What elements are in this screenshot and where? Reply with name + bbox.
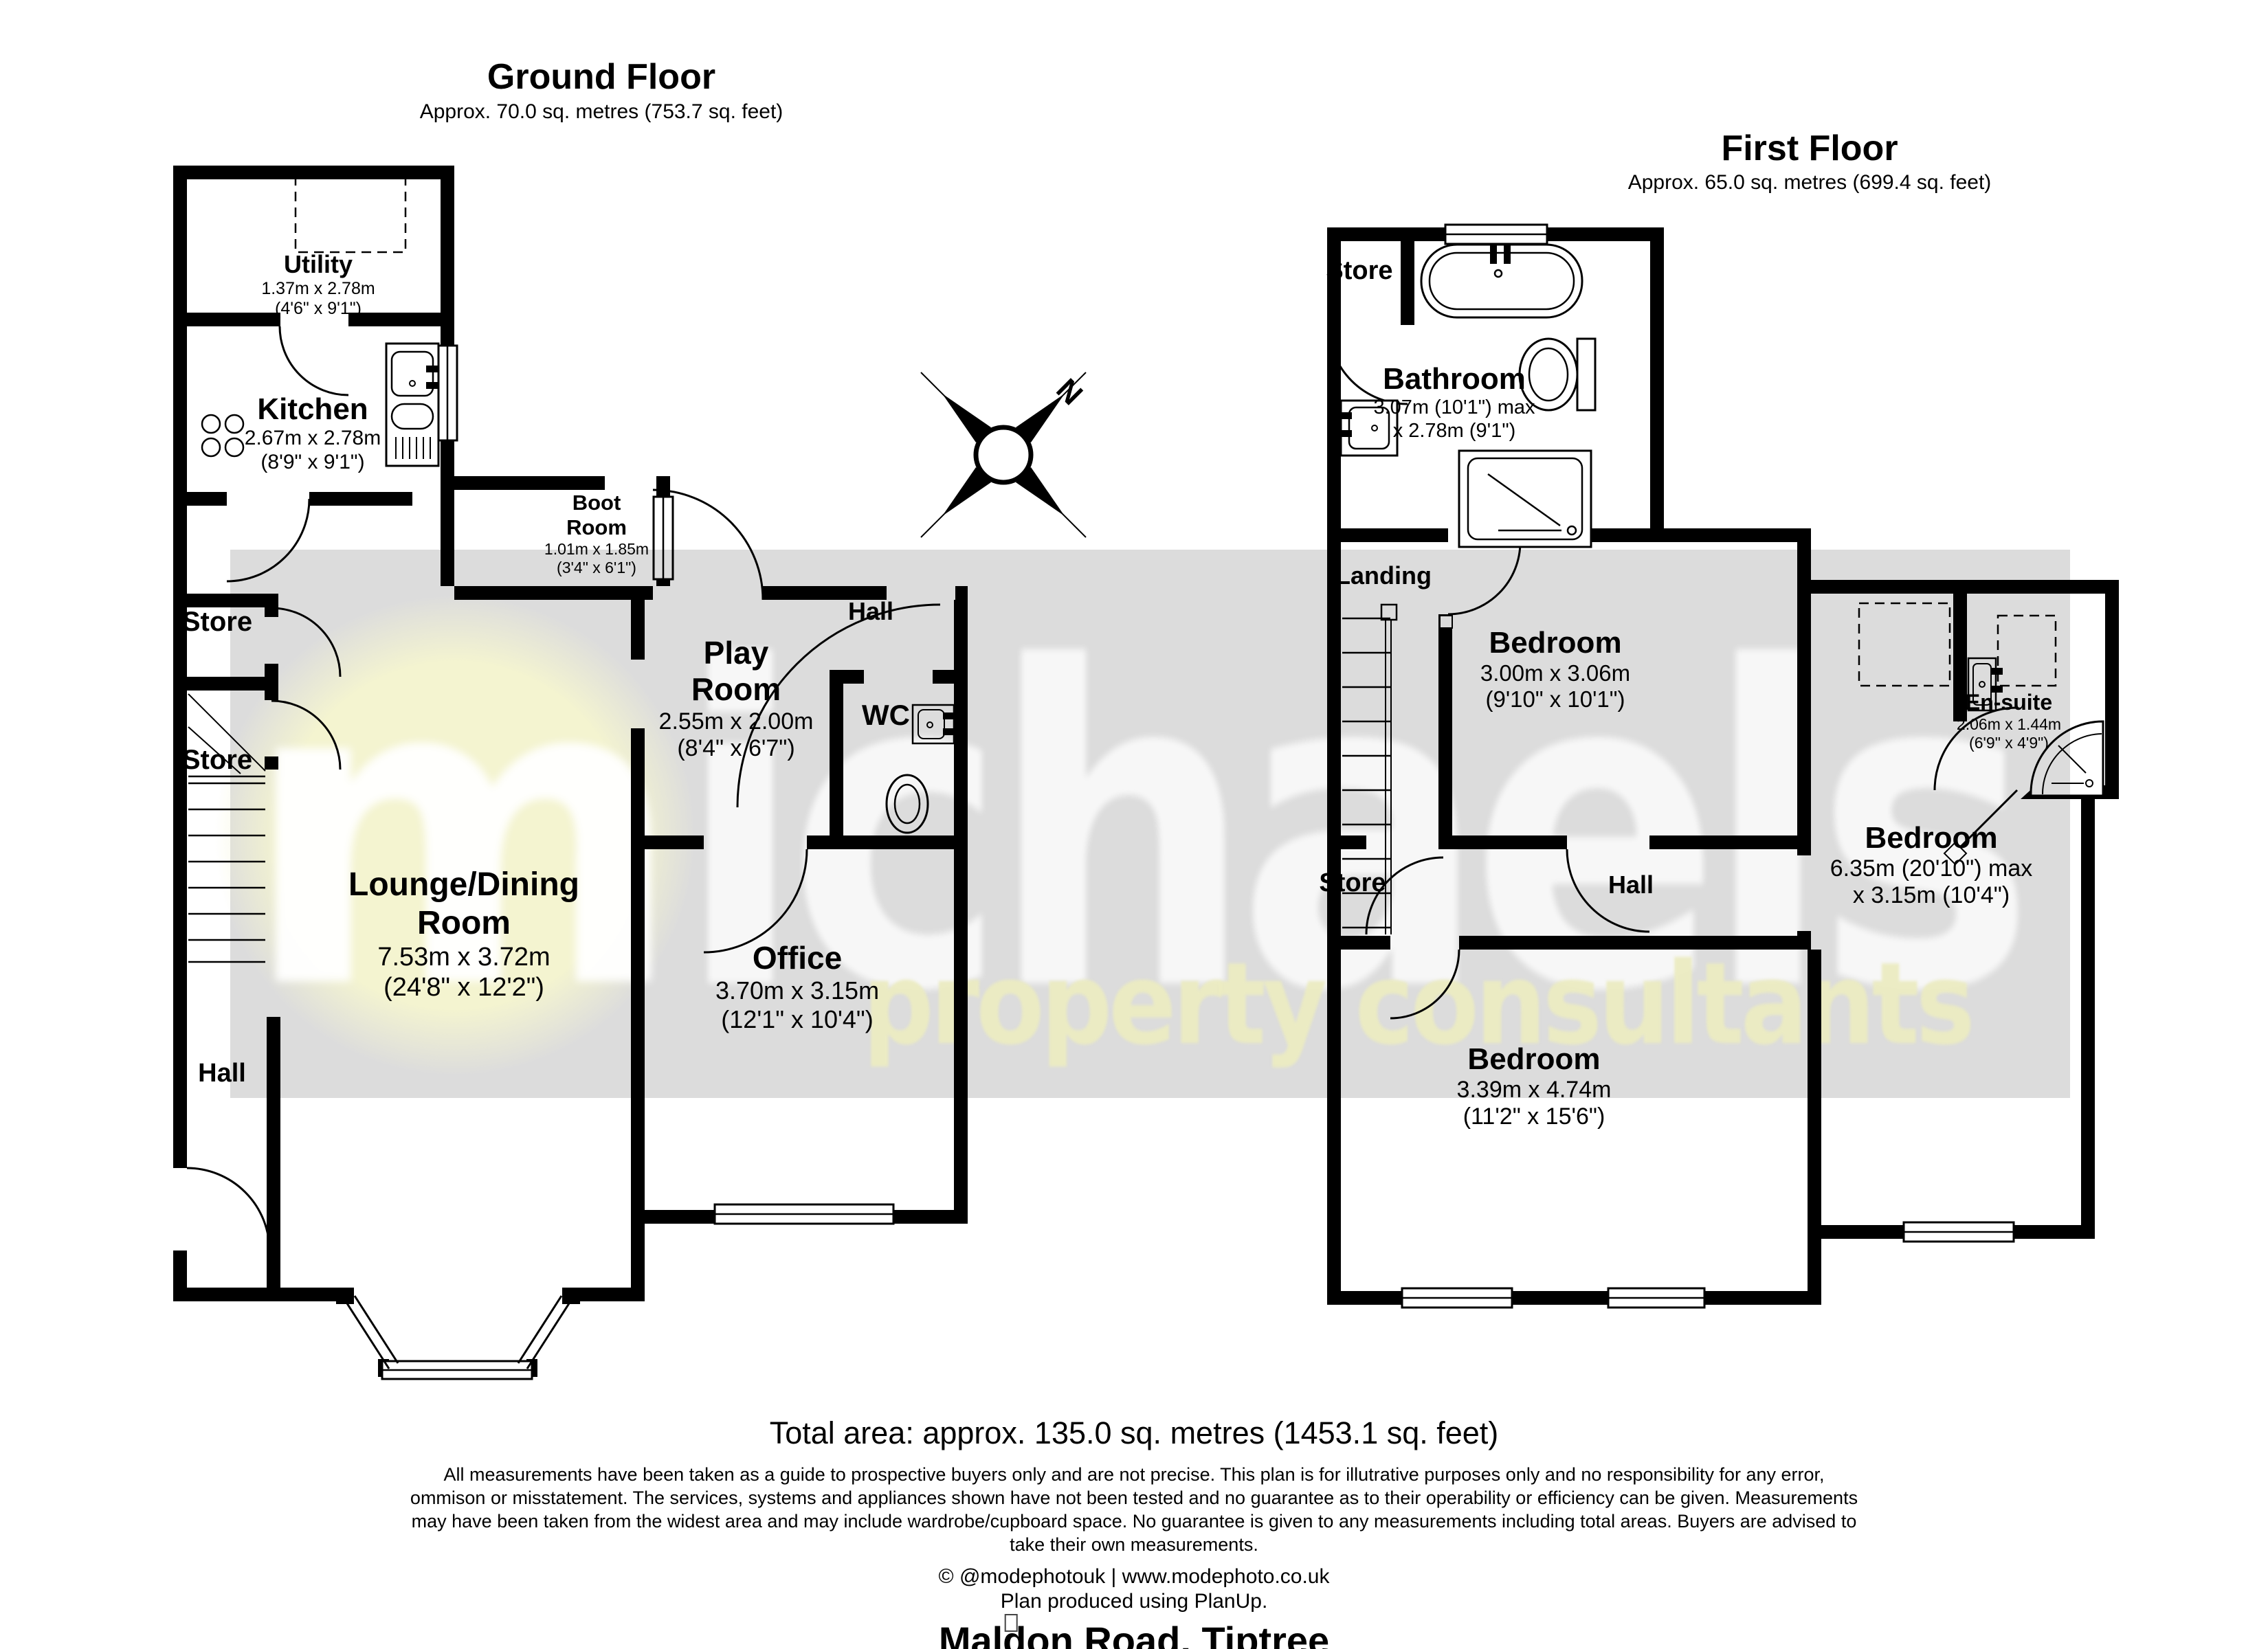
copyright-text: © @modephotouk | www.modephoto.co.uk [939, 1565, 1330, 1589]
first-floor-subtitle: Approx. 65.0 sq. metres (699.4 sq. feet) [1628, 171, 1992, 195]
ground-floor-title: Ground Floor [487, 56, 715, 98]
room-label-lounge-dining: Lounge/Dining Room 7.53m x 3.72m (24'8" … [348, 866, 579, 1003]
ground-floor-subtitle: Approx. 70.0 sq. metres (753.7 sq. feet) [420, 100, 783, 124]
first-floor-title: First Floor [1721, 128, 1898, 169]
bath-icon [1421, 243, 1582, 317]
room-label-office: Office 3.70m x 3.15m (12'1" x 10'4") [715, 940, 879, 1034]
room-label-utility: Utility 1.37m x 2.78m (4'6" x 9'1") [261, 250, 375, 319]
room-label-kitchen: Kitchen 2.67m x 2.78m (8'9" x 9'1") [245, 392, 381, 475]
room-label-store-2: Store [182, 744, 252, 776]
room-label-hall-top: Hall [848, 597, 893, 626]
ground-floor-walls [173, 166, 968, 1377]
room-label-boot-room: Boot Room 1.01m x 1.85m (3'4" x 6'1") [544, 491, 649, 576]
ground-floor-stairs [188, 694, 265, 962]
disclaimer-line-3: may have been taken from the widest area… [412, 1511, 1857, 1532]
room-label-en-suite: En-suite 2.06m x 1.44m (6'9" x 4'9") [1957, 690, 2061, 752]
room-label-wc: WC [862, 699, 910, 732]
room-label-bedroom-2: Bedroom 6.35m (20'10") max x 3.15m (10'4… [1830, 820, 2032, 910]
room-label-landing: Landing [1335, 561, 1432, 590]
room-label-store-mid: Store [1319, 868, 1386, 898]
room-label-hall-bottom: Hall [198, 1058, 246, 1088]
disclaimer-line-4: take their own measurements. [1010, 1534, 1258, 1556]
room-label-bedroom-3: Bedroom 3.39m x 4.74m (11'2" x 15'6") [1457, 1042, 1612, 1131]
address-title: Maldon Road, Tiptree [939, 1619, 1329, 1649]
utility-appliance-icon [296, 175, 405, 252]
room-label-bedroom-1: Bedroom 3.00m x 3.06m (9'10" x 10'1") [1480, 625, 1630, 713]
room-label-play-room: Play Room 2.55m x 2.00m (8'4" x 6'7") [659, 635, 814, 763]
disclaimer-line-2: ommison or misstatement. The services, s… [410, 1488, 1858, 1509]
shower-icon [1459, 451, 1591, 547]
disclaimer-line-1: All measurements have been taken as a gu… [443, 1464, 1824, 1485]
total-area-text: Total area: approx. 135.0 sq. metres (14… [770, 1415, 1499, 1451]
room-label-store-1: Store [182, 606, 252, 638]
floorplan-page: m ichaels property consultants [0, 0, 2268, 1649]
room-label-store-top: Store [1326, 256, 1392, 286]
room-label-hall-ff: Hall [1608, 871, 1654, 899]
room-label-bathroom: Bathroom 3.07m (10'1") max x 2.78m (9'1"… [1373, 361, 1535, 442]
stove-icon [202, 415, 243, 456]
kitchen-sink-icon [386, 344, 438, 466]
bay-window [346, 1296, 570, 1369]
